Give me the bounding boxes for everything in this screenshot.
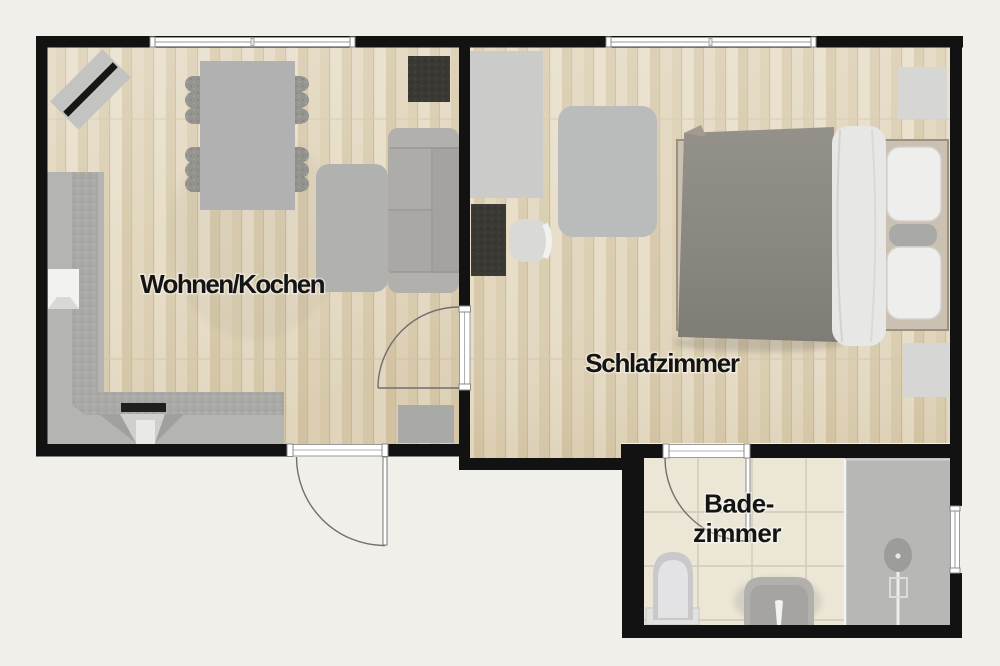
- svg-text:zimmer: zimmer: [693, 518, 781, 548]
- svg-text:Bade-: Bade-: [704, 489, 774, 519]
- svg-text:Wohnen/Kochen: Wohnen/Kochen: [140, 269, 325, 299]
- svg-text:Schlafzimmer: Schlafzimmer: [585, 348, 740, 378]
